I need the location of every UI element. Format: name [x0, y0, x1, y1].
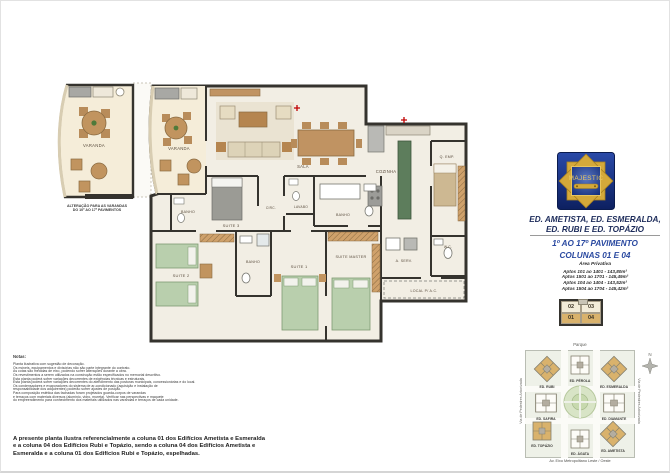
room-label-a-serv: A. SERV. — [396, 259, 413, 263]
site-building-agata: ED. ÁGATA — [571, 430, 590, 456]
street-label-bottom: Av. Eixo Metropolitano Leste / Oeste — [525, 459, 635, 463]
building-names-title: ED. AMETISTA, ED. ESMERALDA, ED. RUBI E … — [519, 215, 670, 235]
alt-bottom-wall — [85, 194, 133, 199]
site-building-perola: ED. PÉROLA — [570, 356, 591, 383]
logo-wordmark: MAJESTIC — [569, 175, 604, 182]
private-area-line: Aptos 1504 ao 1704 - 145,42m² — [519, 286, 670, 292]
notes-title: Notas: — [13, 354, 343, 359]
alt-plan-caption: ALTERAÇÃO PARA AS VARANDAS DO 10º AO 17º… — [43, 204, 151, 213]
key-plan-unit-04: 04 — [581, 313, 601, 325]
disclaimer-line: Esmeralda e a coluna 01 dos Edifícios Ru… — [13, 451, 365, 458]
alt-round-table — [79, 107, 110, 138]
site-building-label: ED. TOPÁZIO — [531, 443, 553, 448]
disclaimer-line: A presente planta ilustra referencialmen… — [13, 436, 365, 443]
key-plan-unit-01: 01 — [561, 313, 581, 325]
disclaimer-line: e a coluna 04 dos Edifícios Rubi e Topáz… — [13, 443, 365, 450]
alt-varanda-floor — [59, 85, 133, 197]
disclaimer-paragraph: A presente planta ilustra referencialmen… — [13, 436, 365, 458]
room-label-local-ac: LOCAL P/ A.C. — [410, 289, 437, 293]
site-building-label: ED. PÉROLA — [570, 378, 591, 383]
room-label-suite1: SUITE 1 — [291, 264, 308, 269]
site-building-label: ED. ESMERALDA — [600, 385, 629, 389]
floor-column-block: 1º AO 17º PAVIMENTO COLUNAS 01 E 04 — [519, 238, 670, 262]
room-label-banho2: BANHO — [246, 260, 260, 264]
room-label-sala: SALA — [297, 164, 309, 169]
room-label-suite3: SUITE 3 — [223, 223, 240, 228]
room-label-q-emp: Q. EMP. — [440, 155, 455, 159]
site-building-label: ED. AMETISTA — [601, 449, 625, 453]
site-building-label: ED. SAFIRA — [536, 417, 556, 421]
room-label-circ: CIRC. — [266, 206, 276, 210]
private-area-block: Área Privativa Aptos 101 ao 1401 - 143,8… — [519, 262, 670, 291]
site-building-diamante: ED. DIAMANTE — [602, 394, 627, 421]
site-building-label: ED. DIAMANTE — [602, 417, 627, 421]
majestic-logo: MAJESTIC — [557, 152, 615, 210]
title-divider — [530, 235, 660, 236]
room-label-banho1: BANHO — [181, 210, 195, 214]
room-label-banho-master: BANHO — [336, 213, 350, 217]
room-label-suite2: SUITE 2 — [173, 273, 190, 278]
suite3-furniture — [212, 178, 242, 220]
site-building-label: ED. ÁGATA — [571, 451, 590, 456]
room-label-cozinha: COZINHA — [376, 169, 397, 174]
street-label-right: Via de Pedestres Arborizada — [637, 370, 641, 432]
private-area-title: Área Privativa — [519, 262, 670, 268]
brochure-page: VARANDA ALTERAÇÃO PARA AS VARANDAS DO 10… — [0, 0, 670, 473]
key-plan: 02 03 01 04 — [559, 299, 603, 326]
room-label-lavabo: LAVABO — [294, 205, 308, 209]
room-label-varanda: VARANDA — [168, 146, 190, 151]
room-label-suite-master: SUITE MASTER — [335, 255, 366, 259]
compass-icon: N — [642, 351, 658, 375]
street-label-left: Via de Pedestres Arborizada — [519, 370, 523, 432]
alt-room-label-varanda: VARANDA — [83, 143, 105, 148]
site-building-label: ED. RUBI — [540, 385, 555, 389]
room-label-wc: W.C. — [444, 245, 452, 249]
compass-north-label: N — [648, 352, 651, 357]
logo-banner — [574, 184, 598, 189]
site-building-safira: ED. SAFIRA — [536, 394, 557, 421]
building-names-line1: ED. AMETISTA, ED. ESMERALDA, — [519, 215, 670, 225]
suite1-furniture — [274, 274, 326, 330]
building-names-line2: ED. RUBI E ED. TOPÁZIO — [519, 225, 670, 235]
park-label: Parque — [525, 342, 635, 347]
columns-range: COLUNAS 01 E 04 — [519, 250, 670, 262]
main-floor-plan: VARANDA SALA COZINHA Q. EMP. W.C. A. SER… — [136, 46, 481, 346]
site-map: ED. RUBI ED. PÉROLA ED. ESMERALDA ED. SA… — [525, 350, 635, 458]
note-line: do empreendimento para conhecimento dos … — [13, 399, 343, 403]
site-building-topazio: ED. TOPÁZIO — [531, 422, 553, 448]
alt-caption-line2: DO 10º AO 17º PAVIMENTOS — [43, 208, 151, 212]
notes-block: Notas: Planta ilustrativa com sugestão d… — [13, 354, 343, 403]
key-plan-core — [578, 299, 588, 305]
floors-range: 1º AO 17º PAVIMENTO — [519, 238, 670, 250]
central-park — [564, 386, 596, 418]
